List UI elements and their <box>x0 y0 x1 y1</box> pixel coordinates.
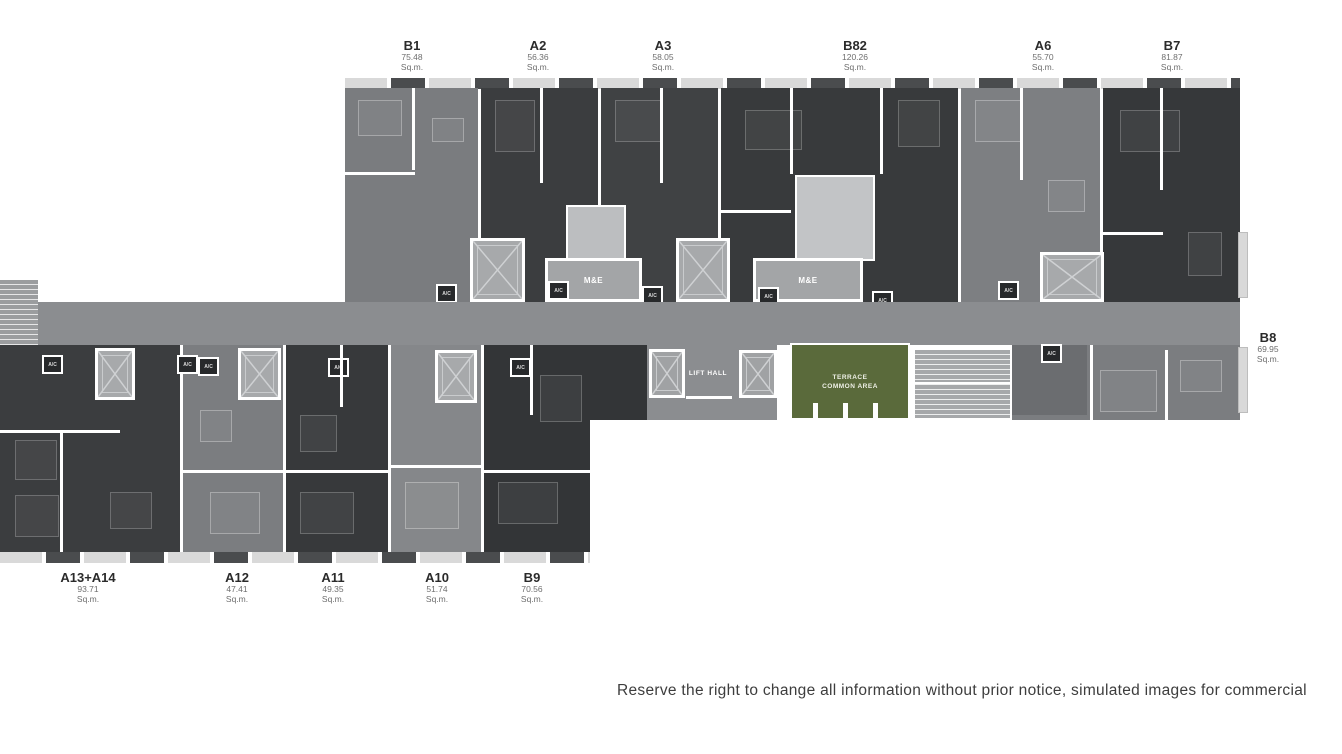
me-room-label: M&E <box>584 276 603 285</box>
furniture <box>200 410 232 442</box>
unit-name: A13+A14 <box>60 570 115 585</box>
ac-label: A/C <box>648 293 657 299</box>
interior-wall <box>1103 232 1163 235</box>
interior-wall <box>540 88 543 183</box>
unit-label-a13-a14: A13+A14 93.71 Sq.m. <box>60 570 115 604</box>
ac-box: A/C <box>436 284 457 303</box>
terrace-planter <box>873 403 878 418</box>
furniture <box>540 375 582 422</box>
unit-name: A10 <box>425 570 449 585</box>
furniture <box>1100 370 1157 412</box>
unit-name: A2 <box>527 38 549 53</box>
lift-core <box>739 350 777 398</box>
unit-name: A12 <box>225 570 249 585</box>
furniture <box>495 100 535 152</box>
lift-core <box>95 348 135 400</box>
interior-wall <box>530 345 533 415</box>
furniture <box>1188 232 1222 276</box>
balcony-strip-bottom <box>0 552 590 563</box>
unit-label-b8: B8 69.95 Sq.m. <box>1257 330 1279 364</box>
ac-box: A/C <box>1041 344 1062 363</box>
unit-name: A6 <box>1032 38 1054 53</box>
unit-area-unit: Sq.m. <box>842 63 868 73</box>
unit-name: B7 <box>1161 38 1183 53</box>
stairwell-right <box>915 350 1010 418</box>
ac-label: A/C <box>48 362 57 368</box>
ac-label: A/C <box>204 364 213 370</box>
interior-wall <box>1165 350 1168 420</box>
unit-area-unit: Sq.m. <box>527 63 549 73</box>
balcony-strip-right <box>1238 347 1248 413</box>
lift-core <box>238 348 281 400</box>
ac-box: A/C <box>510 358 531 377</box>
furniture <box>1180 360 1222 392</box>
unit-label-b9: B9 70.56 Sq.m. <box>521 570 543 604</box>
disclaimer-text: Reserve the right to change all informat… <box>617 682 1307 700</box>
ac-box: A/C <box>548 281 569 300</box>
interior-wall <box>880 88 883 174</box>
floor-plan-page: M&E M&E A/C A/C A/C A/C A/C A/C LIFT HAL… <box>0 0 1342 754</box>
terrace-planter <box>843 403 848 418</box>
furniture <box>405 482 459 529</box>
ac-label: A/C <box>1047 351 1056 357</box>
furniture <box>15 440 57 480</box>
interior-wall <box>391 465 481 468</box>
stairwell-left <box>0 280 38 345</box>
terrace-common-area: TERRACE COMMON AREA <box>790 343 910 420</box>
interior-wall <box>60 433 63 552</box>
ac-label: A/C <box>1004 288 1013 294</box>
bathroom-area <box>566 205 626 261</box>
unit-label-b82: B82 120.26 Sq.m. <box>842 38 868 72</box>
interior-wall <box>340 345 343 407</box>
unit-name: A11 <box>321 570 344 585</box>
furniture <box>300 415 337 452</box>
lift-core <box>1040 252 1104 302</box>
furniture <box>745 110 802 150</box>
ac-label: A/C <box>516 365 525 371</box>
unit-area-unit: Sq.m. <box>1161 63 1183 73</box>
interior-wall <box>183 470 283 473</box>
stair-divider <box>915 382 1010 384</box>
furniture <box>300 492 354 534</box>
unit-label-a3: A3 58.05 Sq.m. <box>652 38 674 72</box>
corridor <box>0 302 1240 345</box>
ac-box: A/C <box>177 355 198 374</box>
lift-core <box>676 238 730 302</box>
unit-area-unit: Sq.m. <box>1257 355 1279 365</box>
ac-label: A/C <box>442 291 451 297</box>
balcony-strip-right <box>1238 232 1248 298</box>
ac-box: A/C <box>198 357 219 376</box>
bathroom-area <box>795 175 875 261</box>
interior-wall <box>412 88 415 170</box>
unit-name: B8 <box>1257 330 1279 345</box>
unit-name: A3 <box>652 38 674 53</box>
furniture <box>498 482 558 524</box>
furniture <box>975 100 1022 142</box>
terrace-label-line2: COMMON AREA <box>822 382 878 391</box>
unit-label-a11: A11 49.35 Sq.m. <box>321 570 344 604</box>
furniture <box>358 100 402 136</box>
unit-b9-extension <box>590 345 647 420</box>
unit-name: B1 <box>401 38 423 53</box>
furniture <box>615 100 662 142</box>
lift-core <box>435 350 477 403</box>
unit-name: B9 <box>521 570 543 585</box>
lift-hall-label: LIFT HALL <box>678 370 738 377</box>
ac-box: A/C <box>42 355 63 374</box>
furniture <box>210 492 260 534</box>
interior-wall <box>721 210 791 213</box>
furniture <box>110 492 152 529</box>
furniture <box>1048 180 1085 212</box>
unit-label-b1: B1 75.48 Sq.m. <box>401 38 423 72</box>
interior-wall <box>1090 345 1093 420</box>
terrace-label-line1: TERRACE <box>822 373 878 382</box>
terrace-planter <box>813 403 818 418</box>
unit-label-a12: A12 47.41 Sq.m. <box>225 570 249 604</box>
me-room-label: M&E <box>798 276 817 285</box>
furniture <box>15 495 59 537</box>
ac-box: A/C <box>328 358 349 377</box>
unit-label-b7: B7 81.87 Sq.m. <box>1161 38 1183 72</box>
interior-wall <box>345 172 415 175</box>
unit-area-unit: Sq.m. <box>321 595 344 605</box>
interior-wall <box>484 470 590 473</box>
unit-label-a6: A6 55.70 Sq.m. <box>1032 38 1054 72</box>
ac-label: A/C <box>764 294 773 300</box>
unit-name: B82 <box>842 38 868 53</box>
unit-area-unit: Sq.m. <box>60 595 115 605</box>
unit-area-unit: Sq.m. <box>425 595 449 605</box>
unit-area-unit: Sq.m. <box>1032 63 1054 73</box>
ac-box: A/C <box>998 281 1019 300</box>
ac-label: A/C <box>554 288 563 294</box>
ac-label: A/C <box>183 362 192 368</box>
interior-wall <box>686 396 732 399</box>
interior-wall <box>286 470 388 473</box>
unit-area-unit: Sq.m. <box>521 595 543 605</box>
unit-label-a10: A10 51.74 Sq.m. <box>425 570 449 604</box>
unit-area-unit: Sq.m. <box>652 63 674 73</box>
unit-area-unit: Sq.m. <box>401 63 423 73</box>
furniture <box>1120 110 1180 152</box>
furniture <box>898 100 940 147</box>
unit-label-a2: A2 56.36 Sq.m. <box>527 38 549 72</box>
unit-area-unit: Sq.m. <box>225 595 249 605</box>
furniture <box>432 118 464 142</box>
lift-core <box>470 238 525 302</box>
